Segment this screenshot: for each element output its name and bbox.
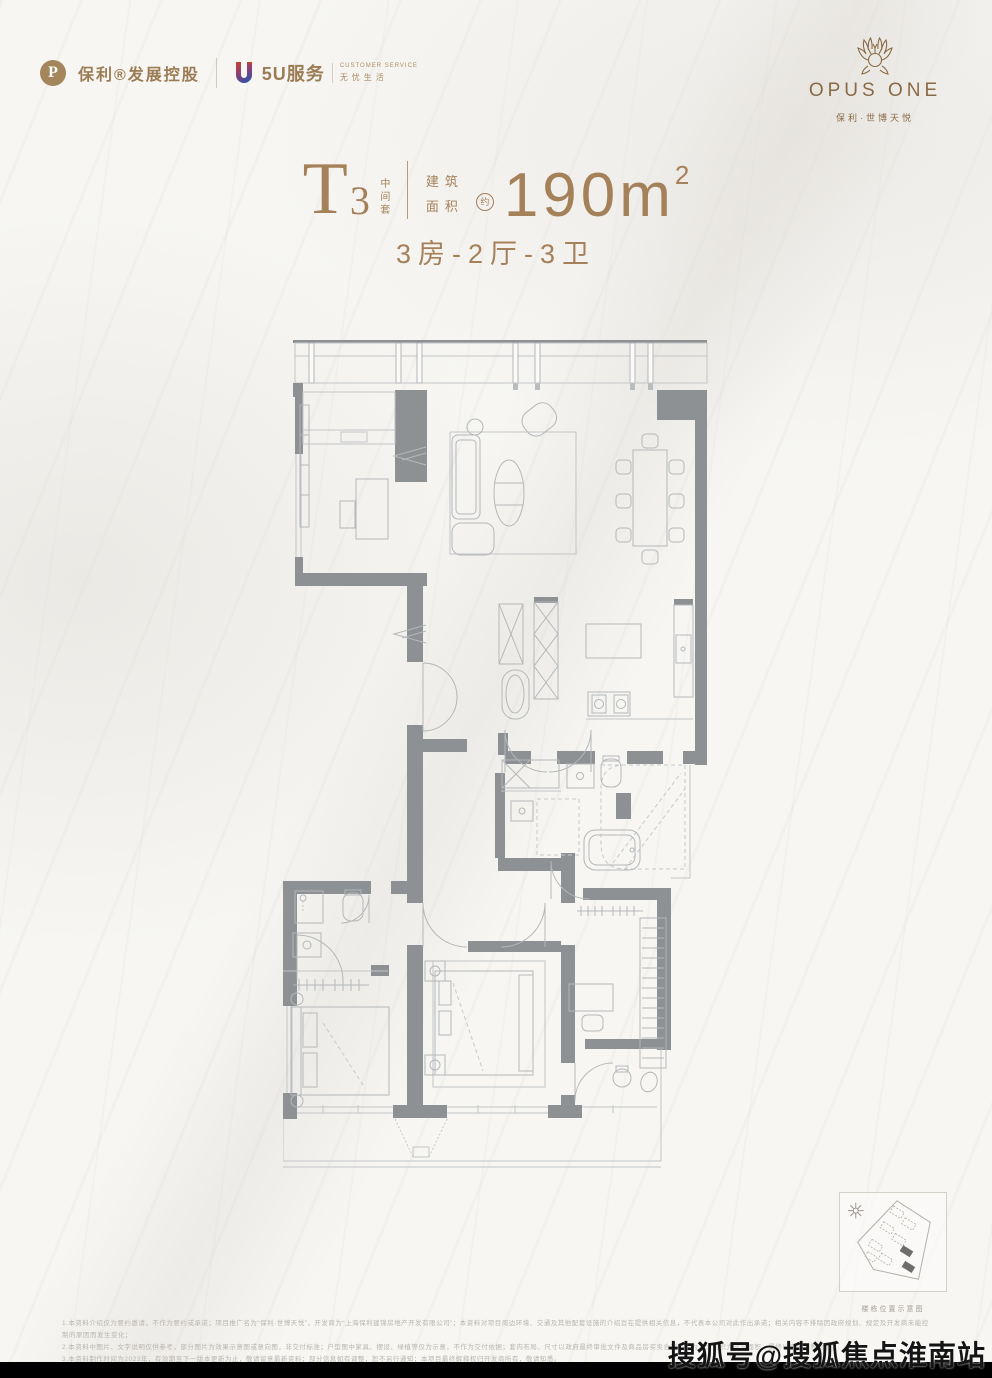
layout-summary: 3房-2厅-3卫: [0, 232, 992, 271]
brand-title: OPUS ONE: [800, 80, 950, 102]
poly-logo-icon: P: [40, 60, 66, 86]
area-label-line1: 建筑: [426, 171, 464, 190]
5u-icon: [233, 60, 255, 86]
walls: [283, 383, 707, 1119]
poly-logo-text: 保利®发展控股: [78, 61, 200, 85]
unit-tag-vertical: 中间套: [376, 178, 391, 217]
area-superscript: 2: [675, 160, 689, 191]
compass-icon: [848, 1203, 864, 1219]
highlighted-buildings: [900, 1245, 916, 1273]
brand-subtitle: 保利·世博天悦: [800, 111, 950, 124]
structure-lines: [283, 392, 693, 1167]
keyplan-caption: 楼栋位置示意图: [838, 1304, 948, 1314]
unit-letter: T: [303, 158, 348, 221]
header-divider: [216, 58, 217, 88]
facade-band: [293, 340, 707, 390]
header-left-logos: P 保利®发展控股 5U服务 CUSTOMER SERVICE 无忧生活: [40, 58, 418, 88]
keyplan-map: [839, 1192, 947, 1292]
sohu-watermark: 搜狐号@搜狐焦点淮南站: [668, 1334, 986, 1374]
approx-badge: 约: [476, 193, 494, 211]
plot-buildings: [865, 1206, 916, 1266]
area-value: 190m: [504, 171, 675, 221]
service-logo-text: 5U服务: [262, 60, 325, 86]
floor-plan: [283, 333, 713, 1173]
plot-outline: [858, 1201, 931, 1279]
title-divider: [407, 161, 408, 219]
phoenix-emblem-icon: [846, 36, 904, 76]
unit-digit: 3: [350, 181, 370, 221]
area-label: 建筑 面积: [426, 171, 464, 215]
service-tagline-en: CUSTOMER SERVICE: [340, 63, 418, 69]
brand-block: OPUS ONE 保利·世博天悦: [800, 36, 950, 124]
area-label-line2: 面积: [426, 196, 464, 215]
service-tagline-cn: 无忧生活: [340, 72, 418, 83]
service-logo: 5U服务 CUSTOMER SERVICE 无忧生活: [233, 60, 418, 86]
unit-title-block: T 3 中间套 建筑 面积 约 190m 2: [0, 158, 992, 221]
keyplan-block: 楼栋位置示意图: [838, 1192, 948, 1314]
service-taglines: CUSTOMER SERVICE 无忧生活: [332, 63, 418, 83]
